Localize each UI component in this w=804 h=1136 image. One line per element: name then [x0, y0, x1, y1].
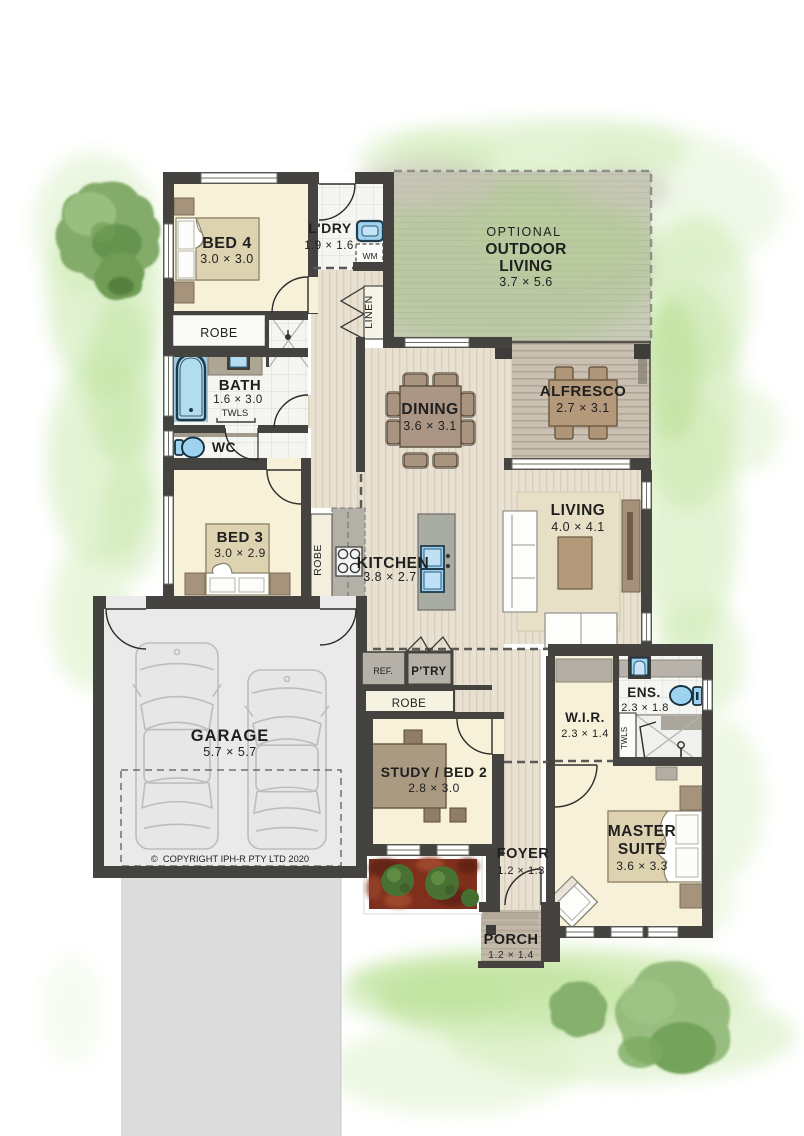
svg-text:LIVING: LIVING	[499, 258, 552, 275]
svg-text:WM: WM	[362, 251, 377, 261]
svg-text:3.0 × 3.0: 3.0 × 3.0	[200, 252, 254, 266]
svg-text:3.8 × 2.7: 3.8 × 2.7	[363, 570, 417, 584]
svg-text:ROBE: ROBE	[200, 326, 237, 340]
svg-text:OUTDOOR: OUTDOOR	[485, 241, 566, 258]
svg-text:REF.: REF.	[373, 666, 393, 676]
svg-text:TWLS: TWLS	[620, 727, 629, 749]
svg-text:PORCH: PORCH	[484, 932, 539, 948]
svg-text:OPTIONAL: OPTIONAL	[486, 225, 561, 239]
svg-text:MASTER: MASTER	[608, 823, 676, 840]
svg-text:FOYER: FOYER	[497, 846, 549, 862]
svg-text:ENS.: ENS.	[627, 685, 661, 700]
svg-text:4.0 × 4.1: 4.0 × 4.1	[551, 520, 605, 534]
svg-text:L'DRY: L'DRY	[308, 220, 352, 236]
svg-text:ROBE: ROBE	[392, 698, 427, 710]
svg-text:3.0 × 2.9: 3.0 × 2.9	[214, 546, 266, 560]
svg-text:2.3 × 1.8: 2.3 × 1.8	[621, 702, 669, 714]
svg-text:W.I.R.: W.I.R.	[565, 710, 605, 725]
svg-text:STUDY / BED 2: STUDY / BED 2	[381, 764, 488, 780]
svg-text:3.6 × 3.3: 3.6 × 3.3	[616, 859, 668, 873]
svg-text:ROBE: ROBE	[312, 544, 324, 576]
svg-text:2.3 × 1.4: 2.3 × 1.4	[561, 728, 609, 740]
svg-text:BATH: BATH	[219, 377, 262, 394]
svg-text:SUITE: SUITE	[618, 841, 666, 858]
svg-text:5.7 × 5.7: 5.7 × 5.7	[203, 745, 257, 759]
svg-text:ALFRESCO: ALFRESCO	[540, 383, 627, 400]
svg-text:1.9 × 1.6: 1.9 × 1.6	[304, 240, 354, 252]
svg-text:WC: WC	[212, 439, 236, 455]
svg-text:2.8 × 3.0: 2.8 × 3.0	[408, 781, 460, 795]
svg-text:3.7 × 5.6: 3.7 × 5.6	[499, 275, 553, 289]
svg-text:GARAGE: GARAGE	[191, 727, 269, 745]
svg-text:LINEN: LINEN	[363, 295, 375, 328]
svg-text:P'TRY: P'TRY	[411, 666, 446, 678]
svg-text:3.6 × 3.1: 3.6 × 3.1	[403, 419, 457, 433]
svg-text:TWLS: TWLS	[222, 408, 248, 419]
svg-text:1.6 × 3.0: 1.6 × 3.0	[213, 394, 263, 406]
svg-text:DINING: DINING	[401, 401, 458, 418]
svg-text:BED 4: BED 4	[202, 235, 252, 252]
svg-text:1.2 × 1.4: 1.2 × 1.4	[488, 949, 534, 961]
svg-text:1.2 × 1.3: 1.2 × 1.3	[497, 865, 545, 877]
svg-text:2.7 × 3.1: 2.7 × 3.1	[556, 401, 610, 415]
svg-text:LIVING: LIVING	[551, 502, 606, 519]
svg-text:BED 3: BED 3	[217, 529, 264, 546]
svg-text:© COPYRIGHT IPH-R PTY LTD 202: © COPYRIGHT IPH-R PTY LTD 2020	[151, 854, 309, 864]
